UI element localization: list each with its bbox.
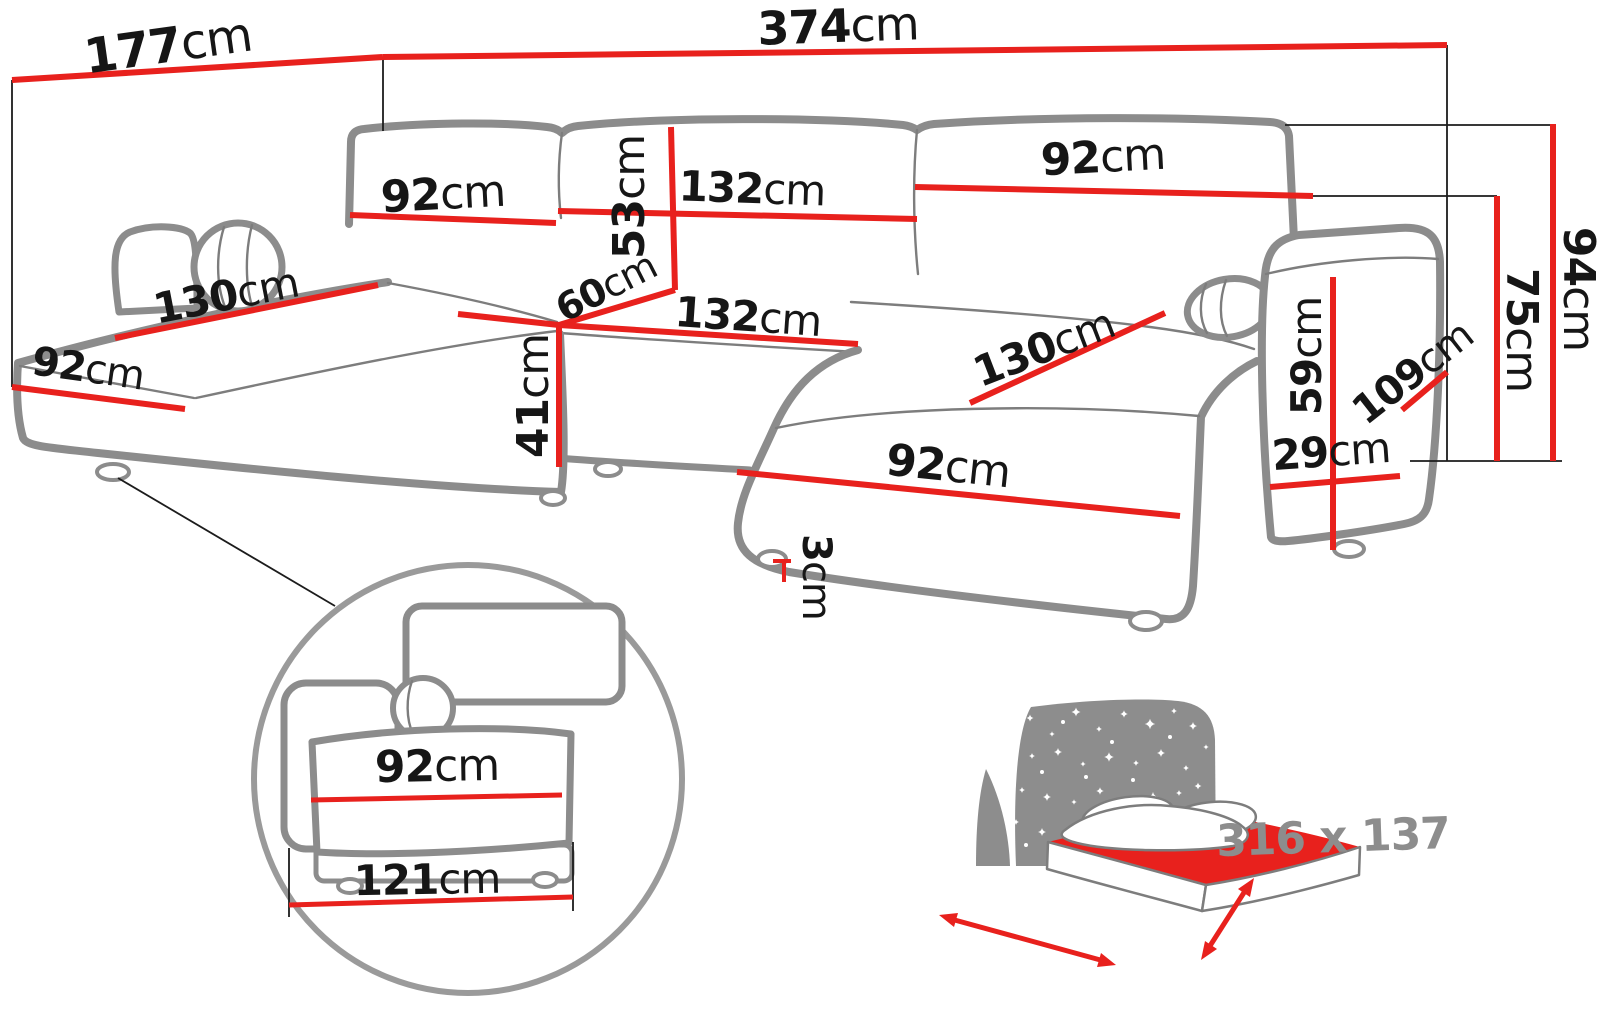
dim-value: 132: [678, 161, 764, 213]
middle-leg: [595, 462, 621, 476]
dim-value: 132: [673, 287, 761, 342]
dim-unit: cm: [942, 441, 1012, 499]
dim-unit: cm: [793, 561, 839, 620]
dim-unit: cm: [850, 0, 920, 53]
dim-unit: cm: [434, 740, 500, 792]
right-chaise-leg-right: [1130, 612, 1162, 630]
dim-label-back-mid: 132cm: [678, 165, 826, 212]
armrest-leg: [1334, 541, 1364, 557]
dim-value: 92: [884, 435, 948, 492]
dim-value: 121: [353, 855, 439, 905]
dim-label-leg-height: 3cm: [796, 534, 836, 620]
dim-value: 75: [1496, 268, 1547, 327]
dim-value: 374: [757, 0, 852, 56]
dim-unit: cm: [1282, 297, 1331, 359]
dim-unit: cm: [1553, 286, 1600, 351]
dim-label-seat-height: 41cm: [512, 334, 556, 458]
inset-leader-line: [118, 478, 335, 606]
dim-label-inset-base: 121cm: [353, 858, 500, 903]
inset-leg-right: [533, 873, 557, 887]
dim-label-back-right: 92cm: [1040, 133, 1166, 183]
dim-line-backrest-height: [671, 127, 675, 290]
dim-unit: cm: [1326, 423, 1391, 476]
dim-label-right-chaise-width: 92cm: [884, 439, 1012, 496]
bed-width-arrowhead-start: [1201, 941, 1217, 960]
dim-value: 29: [1270, 427, 1330, 480]
dim-label-backrest-height: 53cm: [608, 135, 652, 259]
dim-value: 41: [508, 399, 559, 458]
bed-length-arrowhead-start: [939, 913, 958, 927]
dim-value: 92: [374, 741, 434, 793]
dim-unit: cm: [177, 7, 255, 72]
sofa-dimension-diagram: 177cm 374cm 92cm 132cm 92cm 53cm 60cm 13…: [0, 0, 1600, 1011]
dim-label-total-height: 94cm: [1556, 227, 1600, 351]
dim-label-back-left: 92cm: [380, 170, 506, 220]
dim-unit: cm: [1099, 129, 1167, 183]
dim-label-inset-seat-front: 92cm: [374, 744, 499, 790]
dim-unit: cm: [508, 334, 559, 399]
dim-value: 59: [1282, 359, 1331, 415]
dim-value: 92: [29, 338, 89, 391]
sleeping-area-size-value: 316 x 137: [1215, 808, 1450, 867]
dim-label-back-total-height: 75cm: [1499, 268, 1543, 392]
dim-unit: cm: [82, 346, 147, 400]
dim-unit: cm: [758, 293, 823, 346]
dim-value: 92: [380, 169, 442, 223]
dim-unit: cm: [438, 854, 501, 904]
left-chaise-leg-back: [541, 491, 565, 505]
dim-unit: cm: [604, 135, 655, 200]
left-chaise-leg-front: [97, 464, 129, 480]
bed-length-arrow: [951, 919, 1104, 961]
dim-label-mid-seat: 132cm: [673, 291, 822, 343]
dim-label-armrest-width: 29cm: [1270, 427, 1391, 477]
dim-label-armrest-height: 59cm: [1286, 297, 1328, 415]
dim-unit: cm: [762, 164, 826, 215]
starry-crescent: [976, 769, 1010, 866]
bed-length-arrowhead-end: [1097, 953, 1116, 967]
sleeping-area-size-label: 316 x 137: [1215, 812, 1450, 864]
dim-unit: cm: [1496, 327, 1547, 392]
dim-value: 3: [793, 534, 839, 561]
dim-unit: cm: [439, 166, 507, 220]
dim-value: 92: [1040, 132, 1102, 186]
dim-value: 94: [1553, 227, 1600, 286]
dim-label-total-width: 374cm: [757, 0, 920, 52]
